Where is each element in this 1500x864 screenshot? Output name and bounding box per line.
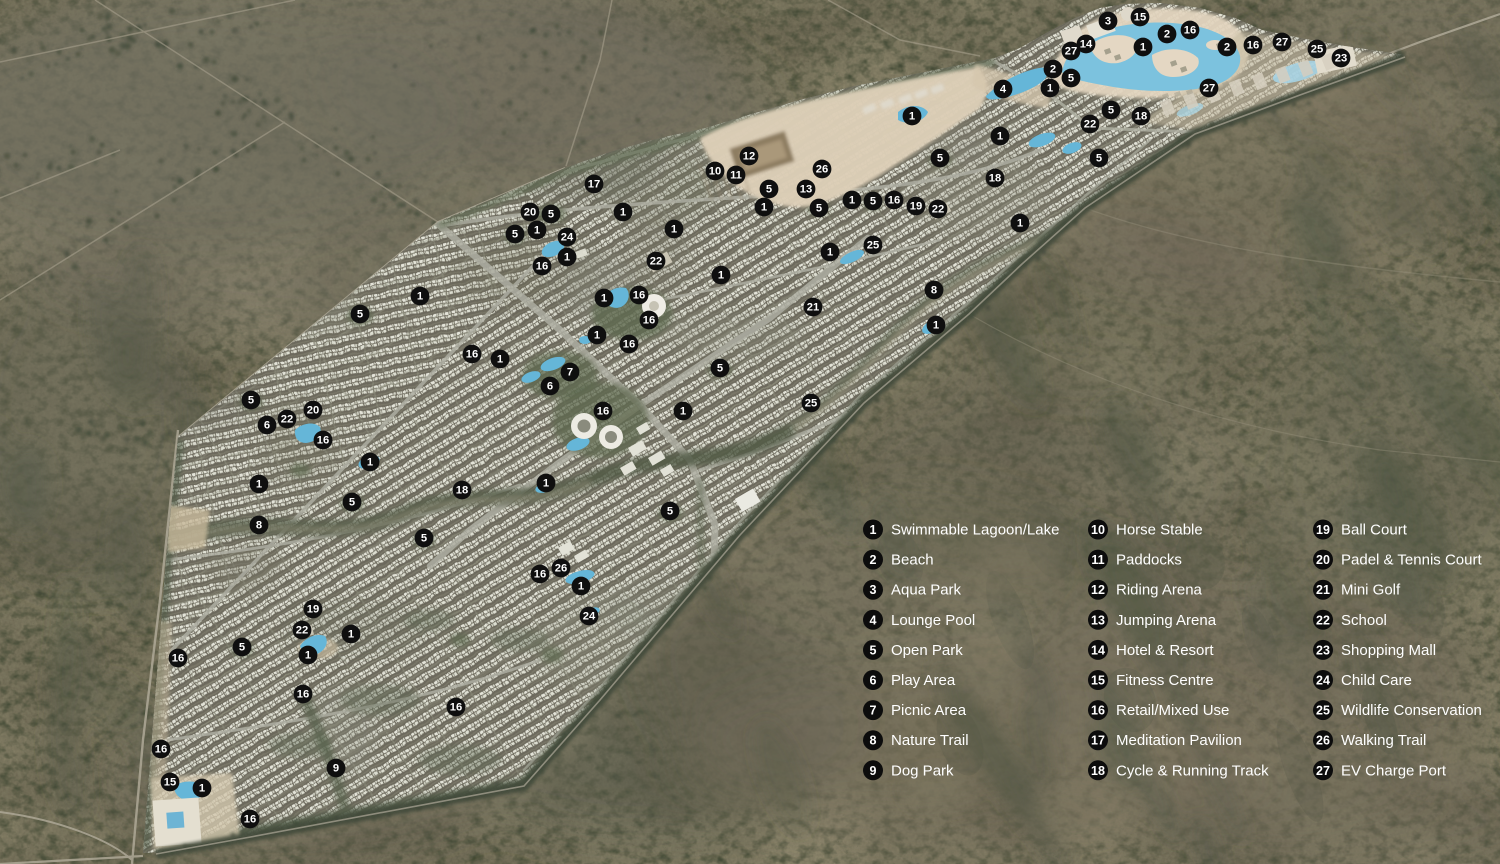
- svg-text:24: 24: [583, 611, 596, 623]
- svg-text:14: 14: [1091, 643, 1105, 657]
- svg-text:13: 13: [1091, 613, 1105, 627]
- svg-text:17: 17: [1091, 734, 1105, 748]
- svg-text:8: 8: [931, 285, 937, 297]
- svg-text:5: 5: [667, 506, 673, 518]
- svg-text:1: 1: [199, 783, 205, 795]
- svg-text:3: 3: [1105, 16, 1111, 28]
- svg-text:2: 2: [1164, 29, 1170, 41]
- svg-text:Mini Golf: Mini Golf: [1341, 582, 1401, 599]
- svg-text:23: 23: [1316, 643, 1330, 657]
- svg-text:Horse Stable: Horse Stable: [1116, 522, 1203, 539]
- svg-text:5: 5: [548, 209, 554, 221]
- svg-text:25: 25: [1316, 704, 1330, 718]
- svg-text:15: 15: [1091, 674, 1105, 688]
- svg-text:Picnic Area: Picnic Area: [891, 702, 967, 719]
- svg-text:13: 13: [800, 184, 812, 196]
- svg-text:19: 19: [1316, 523, 1330, 537]
- svg-text:4: 4: [870, 613, 877, 627]
- svg-text:18: 18: [1091, 764, 1105, 778]
- svg-text:5: 5: [421, 533, 427, 545]
- svg-text:1: 1: [870, 523, 877, 537]
- svg-text:5: 5: [937, 153, 943, 165]
- svg-text:1: 1: [601, 293, 607, 305]
- svg-text:1: 1: [367, 457, 373, 469]
- svg-text:1: 1: [564, 252, 570, 264]
- svg-text:Aqua Park: Aqua Park: [891, 582, 962, 599]
- svg-text:22: 22: [1084, 119, 1096, 131]
- svg-text:Nature Trail: Nature Trail: [891, 732, 969, 749]
- svg-text:21: 21: [1316, 583, 1330, 597]
- svg-text:8: 8: [870, 734, 877, 748]
- svg-text:19: 19: [307, 604, 319, 616]
- svg-text:Open Park: Open Park: [891, 642, 963, 659]
- svg-text:5: 5: [357, 309, 363, 321]
- svg-text:16: 16: [1184, 25, 1196, 37]
- svg-text:6: 6: [870, 674, 877, 688]
- svg-text:1: 1: [1047, 83, 1053, 95]
- svg-text:1: 1: [909, 111, 915, 123]
- svg-text:5: 5: [816, 203, 822, 215]
- svg-text:16: 16: [1091, 704, 1105, 718]
- svg-text:16: 16: [1247, 40, 1259, 52]
- svg-text:14: 14: [1080, 39, 1093, 51]
- svg-text:20: 20: [307, 405, 319, 417]
- svg-text:25: 25: [867, 240, 879, 252]
- svg-text:5: 5: [239, 642, 245, 654]
- svg-text:1: 1: [827, 247, 833, 259]
- svg-text:1: 1: [594, 330, 600, 342]
- svg-text:Jumping Arena: Jumping Arena: [1116, 612, 1217, 629]
- svg-text:21: 21: [807, 302, 819, 314]
- svg-text:Child Care: Child Care: [1341, 672, 1412, 689]
- svg-text:18: 18: [456, 485, 468, 497]
- svg-text:16: 16: [536, 261, 548, 273]
- svg-text:5: 5: [717, 363, 723, 375]
- svg-text:22: 22: [1316, 613, 1330, 627]
- svg-text:27: 27: [1276, 37, 1288, 49]
- svg-text:16: 16: [297, 689, 309, 701]
- svg-text:27: 27: [1316, 764, 1330, 778]
- svg-text:22: 22: [281, 414, 293, 426]
- svg-text:27: 27: [1203, 83, 1215, 95]
- svg-text:Retail/Mixed Use: Retail/Mixed Use: [1116, 702, 1229, 719]
- svg-text:Dog Park: Dog Park: [891, 762, 954, 779]
- svg-text:1: 1: [497, 354, 503, 366]
- svg-text:Walking Trail: Walking Trail: [1341, 732, 1426, 749]
- svg-text:5: 5: [1096, 153, 1102, 165]
- svg-text:10: 10: [1091, 523, 1105, 537]
- svg-text:8: 8: [256, 520, 262, 532]
- svg-text:16: 16: [450, 702, 462, 714]
- svg-text:Shopping Mall: Shopping Mall: [1341, 642, 1436, 659]
- svg-text:1: 1: [417, 291, 423, 303]
- svg-text:16: 16: [317, 435, 329, 447]
- svg-text:1: 1: [256, 479, 262, 491]
- svg-text:25: 25: [1311, 44, 1323, 56]
- svg-text:16: 16: [633, 290, 645, 302]
- svg-text:2: 2: [1224, 42, 1230, 54]
- svg-text:7: 7: [870, 704, 877, 718]
- svg-text:5: 5: [870, 196, 876, 208]
- svg-text:Play Area: Play Area: [891, 672, 956, 689]
- svg-text:3: 3: [870, 583, 877, 597]
- svg-text:EV Charge Port: EV Charge Port: [1341, 762, 1447, 779]
- svg-text:16: 16: [172, 653, 184, 665]
- svg-text:25: 25: [805, 398, 817, 410]
- svg-text:17: 17: [588, 179, 600, 191]
- svg-text:1: 1: [680, 406, 686, 418]
- svg-text:Beach: Beach: [891, 552, 934, 569]
- svg-text:1: 1: [543, 478, 549, 490]
- svg-text:School: School: [1341, 612, 1387, 629]
- svg-text:24: 24: [561, 232, 574, 244]
- svg-text:Paddocks: Paddocks: [1116, 552, 1182, 569]
- svg-text:1: 1: [1017, 218, 1023, 230]
- svg-text:Lounge Pool: Lounge Pool: [891, 612, 975, 629]
- svg-text:22: 22: [932, 204, 944, 216]
- svg-text:1: 1: [761, 202, 767, 214]
- svg-text:9: 9: [333, 763, 339, 775]
- svg-text:7: 7: [567, 367, 573, 379]
- svg-text:1: 1: [305, 650, 311, 662]
- svg-text:6: 6: [264, 420, 270, 432]
- svg-text:1: 1: [1140, 42, 1146, 54]
- svg-text:1: 1: [997, 131, 1003, 143]
- svg-text:1: 1: [849, 195, 855, 207]
- svg-text:Swimmable Lagoon/Lake: Swimmable Lagoon/Lake: [891, 522, 1059, 539]
- svg-text:9: 9: [870, 764, 877, 778]
- svg-text:11: 11: [730, 170, 742, 182]
- svg-text:5: 5: [870, 643, 877, 657]
- svg-text:12: 12: [1091, 583, 1105, 597]
- svg-text:Riding Arena: Riding Arena: [1116, 582, 1203, 599]
- svg-text:Fitness Centre: Fitness Centre: [1116, 672, 1214, 689]
- svg-text:Cycle & Running Track: Cycle & Running Track: [1116, 762, 1269, 779]
- svg-text:18: 18: [1135, 111, 1147, 123]
- svg-text:26: 26: [1316, 734, 1330, 748]
- svg-text:20: 20: [1316, 553, 1330, 567]
- svg-text:20: 20: [524, 207, 536, 219]
- svg-text:Wildlife Conservation: Wildlife Conservation: [1341, 702, 1482, 719]
- svg-text:16: 16: [466, 349, 478, 361]
- svg-text:5: 5: [1108, 105, 1114, 117]
- svg-text:4: 4: [1000, 84, 1007, 96]
- svg-text:16: 16: [244, 814, 256, 826]
- svg-text:Hotel & Resort: Hotel & Resort: [1116, 642, 1214, 659]
- svg-text:2: 2: [870, 553, 877, 567]
- svg-text:22: 22: [296, 625, 308, 637]
- svg-text:Meditation Pavilion: Meditation Pavilion: [1116, 732, 1242, 749]
- svg-text:5: 5: [349, 497, 355, 509]
- svg-text:16: 16: [623, 339, 635, 351]
- svg-text:6: 6: [547, 381, 553, 393]
- svg-text:23: 23: [1335, 53, 1347, 65]
- svg-text:5: 5: [248, 395, 254, 407]
- svg-text:5: 5: [766, 184, 772, 196]
- svg-text:26: 26: [555, 563, 567, 575]
- svg-text:27: 27: [1065, 46, 1077, 58]
- svg-text:5: 5: [1068, 73, 1074, 85]
- svg-text:16: 16: [534, 569, 546, 581]
- svg-text:1: 1: [671, 224, 677, 236]
- svg-text:1: 1: [578, 581, 584, 593]
- svg-text:1: 1: [348, 629, 354, 641]
- svg-text:1: 1: [933, 320, 939, 332]
- svg-text:1: 1: [620, 207, 626, 219]
- svg-text:16: 16: [888, 195, 900, 207]
- svg-text:16: 16: [597, 406, 609, 418]
- svg-text:22: 22: [650, 256, 662, 268]
- svg-text:Ball Court: Ball Court: [1341, 522, 1408, 539]
- svg-text:1: 1: [718, 270, 724, 282]
- svg-text:18: 18: [989, 173, 1001, 185]
- svg-text:16: 16: [643, 315, 655, 327]
- svg-text:2: 2: [1050, 64, 1056, 76]
- svg-text:12: 12: [743, 151, 755, 163]
- svg-text:26: 26: [816, 164, 828, 176]
- svg-text:11: 11: [1091, 553, 1104, 567]
- svg-text:19: 19: [910, 201, 922, 213]
- svg-text:16: 16: [155, 744, 167, 756]
- svg-text:10: 10: [709, 166, 721, 178]
- svg-text:5: 5: [512, 229, 518, 241]
- svg-text:24: 24: [1316, 674, 1330, 688]
- svg-text:Padel & Tennis Court: Padel & Tennis Court: [1341, 552, 1482, 569]
- svg-text:1: 1: [534, 225, 540, 237]
- svg-text:15: 15: [164, 777, 176, 789]
- svg-text:15: 15: [1134, 12, 1146, 24]
